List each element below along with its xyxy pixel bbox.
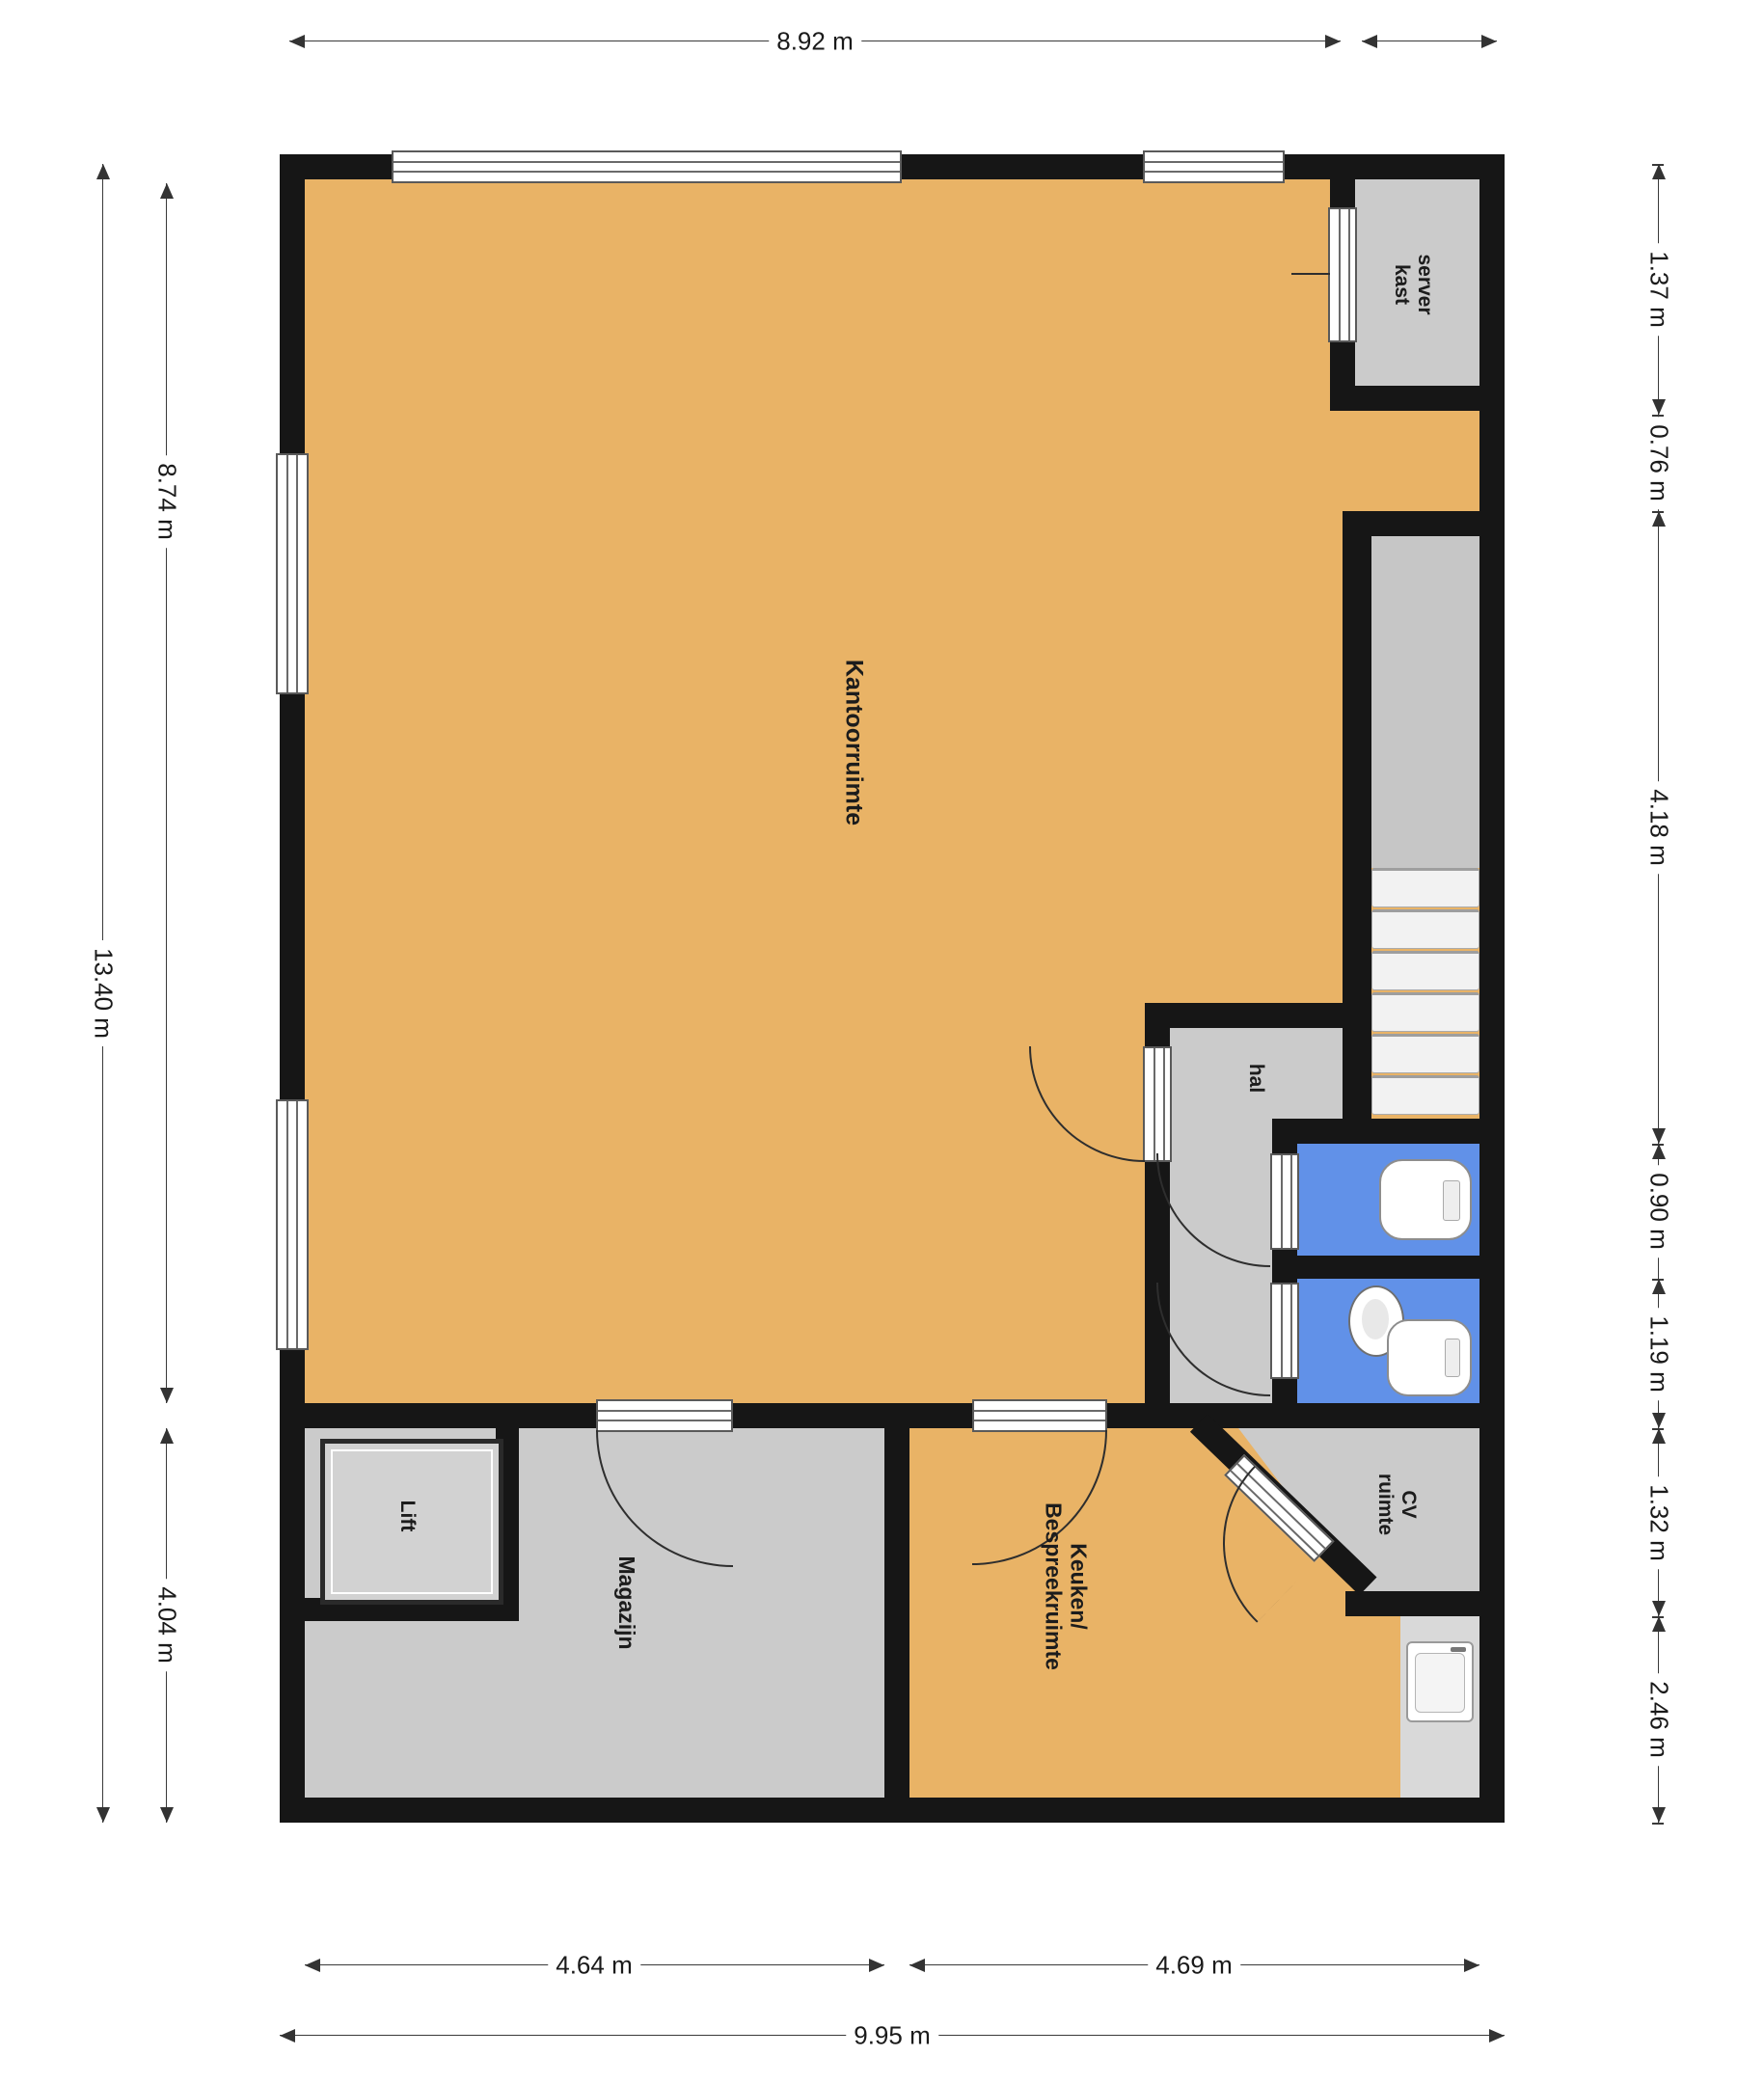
door-server-kast [1328, 207, 1357, 342]
dim-left-total: 13.40 m [88, 940, 120, 1046]
label-keuken: Keuken/ Bespreekruimte [1041, 1502, 1092, 1670]
toilet-icon [1379, 1159, 1472, 1240]
window-top-2 [1143, 150, 1285, 183]
door-hal [1143, 1046, 1172, 1162]
label-hal: hal [1244, 1064, 1267, 1093]
door-server-kast-tick [1291, 273, 1330, 275]
arrow-down-icon [96, 1807, 110, 1823]
dim-bottom-right: 4.69 m [1148, 1950, 1240, 1982]
wall-toilet-mid [1272, 1256, 1479, 1279]
window-left-1 [276, 453, 309, 694]
wall-divider-horizontal [280, 1403, 1505, 1428]
arrow-left-icon [289, 35, 305, 48]
arrow-up-icon [1652, 511, 1666, 527]
stairs [1371, 868, 1479, 1121]
arrow-right-icon [869, 1959, 884, 1972]
dim-right-7: 2.46 m [1643, 1673, 1675, 1766]
arrow-down-icon [1652, 1601, 1666, 1616]
door-toilet-1 [1270, 1153, 1299, 1250]
arrow-left-icon [280, 2029, 295, 2042]
arrow-up-icon [160, 183, 174, 199]
door-magazijn [596, 1399, 733, 1432]
window-left-2 [276, 1099, 309, 1350]
dim-bottom-total: 9.95 m [846, 2020, 938, 2052]
dim-right-6: 1.32 m [1643, 1476, 1675, 1569]
arrow-down-icon [1652, 1413, 1666, 1428]
arrow-left-icon [909, 1959, 925, 1972]
arrow-right-icon [1481, 35, 1497, 48]
label-kantoorruimte: Kantoorruimte [840, 660, 868, 825]
label-magazijn: Magazijn [614, 1555, 639, 1649]
arrow-up-icon [1652, 1428, 1666, 1444]
arrow-down-icon [160, 1388, 174, 1403]
dim-tick [1652, 1823, 1664, 1825]
sink-icon [1406, 1641, 1474, 1722]
dim-right-4: 0.90 m [1643, 1165, 1675, 1258]
arrow-up-icon [1652, 1144, 1666, 1159]
wall-serverkast-bottom [1330, 386, 1479, 411]
wall-cv-bottom [1345, 1591, 1479, 1616]
toilet-icon [1387, 1319, 1472, 1396]
stair-landing [1371, 536, 1479, 868]
arrow-up-icon [1652, 164, 1666, 179]
arrow-up-icon [1652, 1279, 1666, 1294]
arrow-right-icon [1325, 35, 1341, 48]
wall-outer-bottom [280, 1798, 1505, 1823]
dim-right-2: 0.76 m [1643, 417, 1675, 509]
wall-outer-left [280, 154, 305, 1823]
arrow-down-icon [160, 1807, 174, 1823]
dim-bottom-left: 4.64 m [548, 1950, 640, 1982]
dim-line-left-upper [166, 183, 167, 1403]
dim-top-width: 8.92 m [769, 26, 861, 58]
label-server-kast: server kast [1390, 254, 1436, 314]
wall-magazijn-keuken [884, 1428, 909, 1798]
arrow-down-icon [1652, 399, 1666, 415]
wall-toilet-top [1272, 1119, 1479, 1144]
arrow-up-icon [96, 164, 110, 179]
wall-outer-right [1479, 154, 1505, 1823]
arrow-down-icon [1652, 1128, 1666, 1144]
stair-step [1371, 868, 1479, 907]
arrow-up-icon [160, 1428, 174, 1444]
label-cv-ruimte: CV ruimte [1373, 1474, 1420, 1535]
room-hal-upper [1170, 1028, 1371, 1119]
dim-right-1: 1.37 m [1643, 243, 1675, 336]
wall-hal-top [1145, 1003, 1371, 1028]
dim-right-5: 1.19 m [1643, 1308, 1675, 1400]
stair-step [1371, 951, 1479, 990]
floorplan: Kantoorruimte server kast hal Lift Magaz… [0, 0, 1764, 2083]
dim-line-top-small [1362, 41, 1497, 41]
stair-step [1371, 1034, 1479, 1073]
door-keuken [972, 1399, 1107, 1432]
window-top-1 [392, 150, 902, 183]
door-toilet-2 [1270, 1283, 1299, 1379]
arrow-right-icon [1464, 1959, 1479, 1972]
stair-step [1371, 1075, 1479, 1115]
arrow-left-icon [305, 1959, 320, 1972]
label-lift: Lift [395, 1501, 419, 1532]
arrow-left-icon [1362, 35, 1377, 48]
stair-step [1371, 992, 1479, 1032]
arrow-down-icon [1652, 1807, 1666, 1823]
stair-step [1371, 909, 1479, 949]
dim-left-upper: 8.74 m [151, 455, 183, 548]
dim-left-lower: 4.04 m [151, 1579, 183, 1671]
arrow-right-icon [1489, 2029, 1505, 2042]
arrow-up-icon [1652, 1616, 1666, 1632]
dim-right-3: 4.18 m [1643, 781, 1675, 874]
